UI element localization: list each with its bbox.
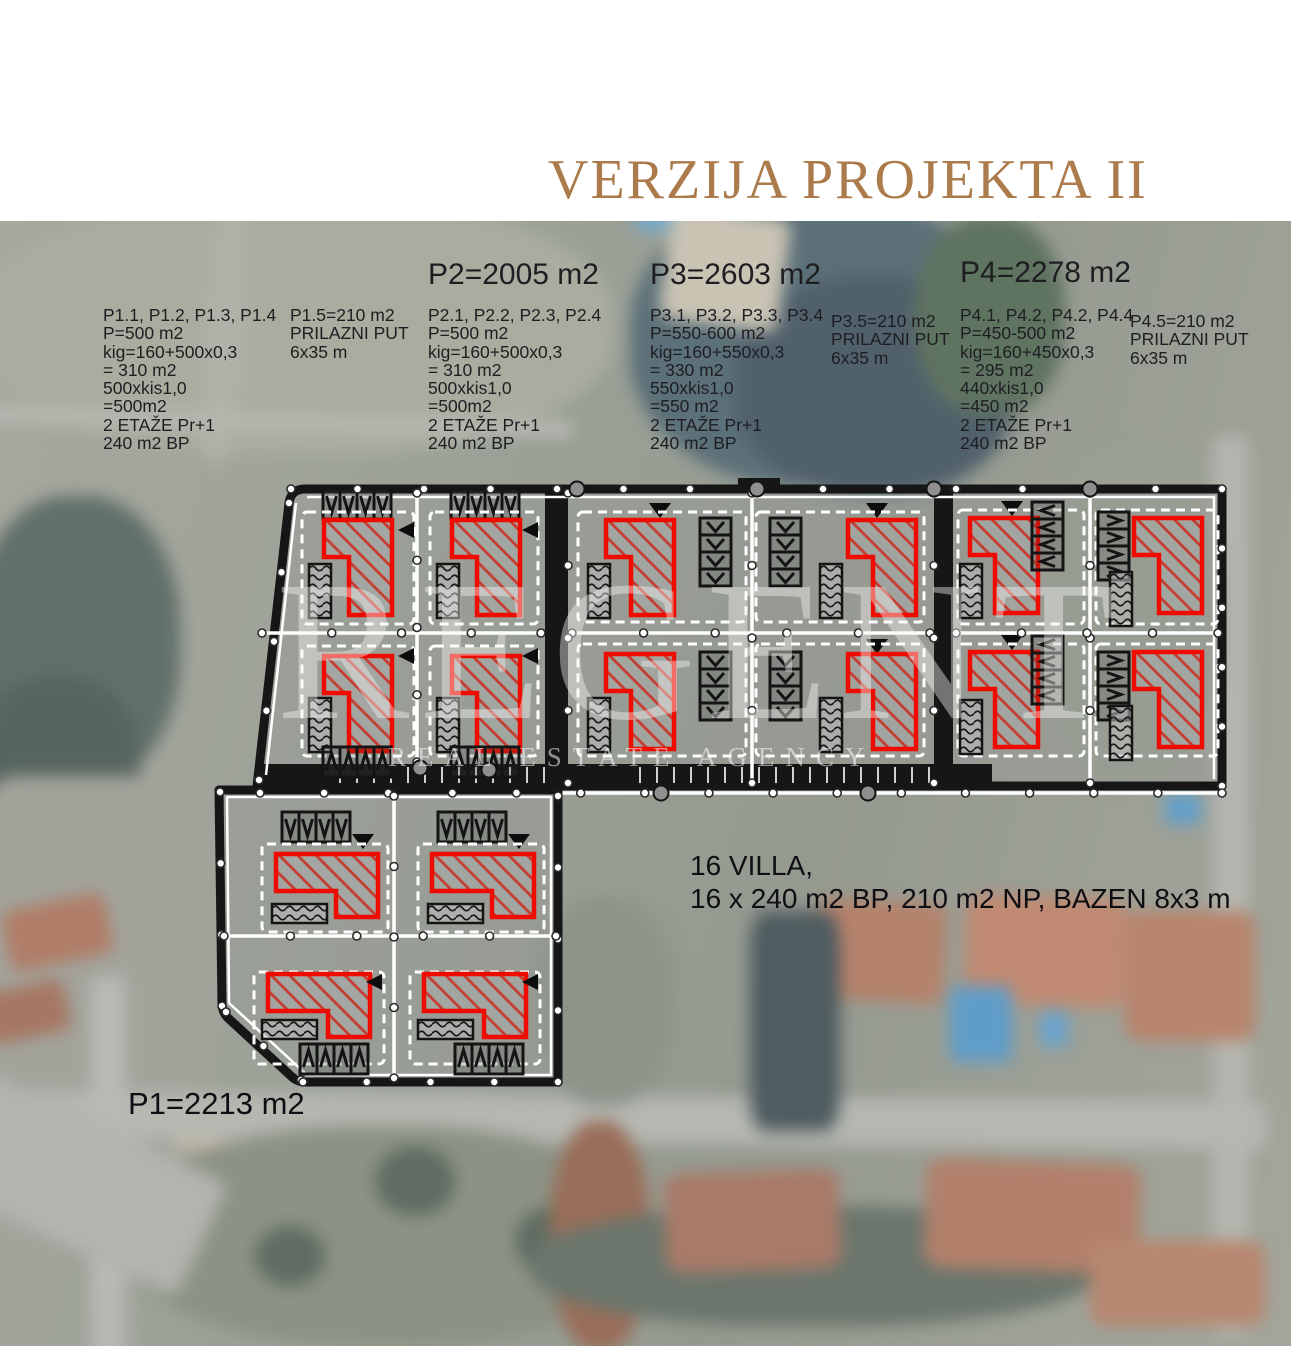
survey-node bbox=[554, 1007, 562, 1015]
pool-icon bbox=[418, 1020, 473, 1039]
survey-node bbox=[886, 485, 894, 493]
text-line: 240 m2 BP bbox=[103, 434, 276, 452]
parcel-p4-access: P4.5=210 m2PRILAZNI PUT6x35 m bbox=[1130, 312, 1249, 367]
survey-node bbox=[363, 1078, 371, 1086]
text-line: =500m2 bbox=[103, 397, 276, 415]
text-line: P4.5=210 m2 bbox=[1130, 312, 1249, 330]
survey-node bbox=[258, 629, 266, 637]
survey-node bbox=[564, 779, 572, 787]
watermark-brand: REGENT bbox=[276, 552, 1125, 752]
survey-node bbox=[1218, 663, 1226, 671]
parcel-p3-header: P3=2603 m2 bbox=[650, 258, 821, 292]
text-line: 240 m2 BP bbox=[960, 434, 1133, 452]
survey-node bbox=[299, 1078, 307, 1086]
survey-node bbox=[390, 1074, 398, 1082]
survey-node bbox=[1218, 723, 1226, 731]
junction-node bbox=[570, 482, 585, 497]
text-line: 6x35 m bbox=[831, 349, 950, 367]
text-line: 2 ETAŽE Pr+1 bbox=[428, 416, 601, 434]
text-line: 6x35 m bbox=[290, 343, 409, 361]
parcel-p1-header: P1=2213 m2 bbox=[128, 1086, 305, 1122]
survey-node bbox=[1154, 789, 1162, 797]
text-line: P=550-600 m2 bbox=[650, 324, 823, 342]
text-line: = 295 m2 bbox=[960, 361, 1133, 379]
parcel-p2-header: P2=2005 m2 bbox=[428, 258, 599, 292]
junction-node bbox=[654, 786, 669, 801]
text-line: P2.1, P2.2, P2.3, P2.4 bbox=[428, 306, 601, 324]
text-line: kig=160+500x0,3 bbox=[428, 343, 601, 361]
plan-p1-section bbox=[219, 790, 558, 1082]
survey-node bbox=[554, 864, 562, 872]
parcel-p3-details: P3.1, P3.2, P3.3, P3.4P=550-600 m2kig=16… bbox=[650, 306, 823, 452]
survey-node bbox=[413, 489, 421, 497]
text-line: PRILAZNI PUT bbox=[1130, 330, 1249, 348]
survey-node bbox=[554, 792, 562, 800]
survey-node bbox=[1086, 779, 1094, 787]
survey-node bbox=[353, 932, 361, 940]
survey-node bbox=[769, 789, 777, 797]
survey-node bbox=[833, 789, 841, 797]
parking-icon bbox=[438, 812, 506, 842]
survey-node bbox=[897, 789, 905, 797]
junction-node bbox=[750, 482, 765, 497]
survey-node bbox=[1218, 789, 1226, 797]
text-line: 440xkis1,0 bbox=[960, 379, 1133, 397]
text-line: PRILAZNI PUT bbox=[290, 324, 409, 342]
text-line: P3.1, P3.2, P3.3, P3.4 bbox=[650, 306, 823, 324]
text-line: 500xkis1,0 bbox=[428, 379, 601, 397]
villas-annotation: 16 VILLA, 16 x 240 m2 BP, 210 m2 NP, BAZ… bbox=[690, 849, 1231, 915]
text-line: 500xkis1,0 bbox=[103, 379, 276, 397]
text-line: =500m2 bbox=[428, 397, 601, 415]
survey-node bbox=[260, 1042, 268, 1050]
survey-node bbox=[354, 485, 362, 493]
text-line: PRILAZNI PUT bbox=[831, 330, 950, 348]
pool-icon bbox=[272, 904, 327, 923]
text-line: kig=160+550x0,3 bbox=[650, 343, 823, 361]
survey-node bbox=[952, 485, 960, 493]
pool-icon bbox=[428, 904, 483, 923]
survey-node bbox=[486, 932, 494, 940]
text-line: 550xkis1,0 bbox=[650, 379, 823, 397]
junction-node bbox=[1083, 482, 1098, 497]
text-line: 2 ETAŽE Pr+1 bbox=[650, 416, 823, 434]
survey-node bbox=[216, 788, 224, 796]
text-line: =550 m2 bbox=[650, 397, 823, 415]
junction-node bbox=[927, 482, 942, 497]
text-line: 240 m2 BP bbox=[428, 434, 601, 452]
parcel-p2-details: P2.1, P2.2, P2.3, P2.4P=500 m2kig=160+50… bbox=[428, 306, 601, 452]
survey-node bbox=[286, 932, 294, 940]
text-line: P1.1, P1.2, P1.3, P1.4 bbox=[103, 306, 276, 324]
survey-node bbox=[1090, 789, 1098, 797]
survey-node bbox=[1218, 604, 1226, 612]
parcel-p4-header: P4=2278 m2 bbox=[960, 256, 1131, 290]
survey-node bbox=[220, 932, 228, 940]
survey-node bbox=[686, 485, 694, 493]
survey-node bbox=[930, 779, 938, 787]
text-line: P1.5=210 m2 bbox=[290, 306, 409, 324]
survey-node bbox=[552, 932, 560, 940]
survey-node bbox=[287, 485, 295, 493]
text-line: 2 ETAŽE Pr+1 bbox=[103, 416, 276, 434]
parking-icon bbox=[282, 812, 350, 842]
survey-node bbox=[1152, 485, 1160, 493]
text-line: = 310 m2 bbox=[428, 361, 601, 379]
survey-node bbox=[222, 1008, 230, 1016]
survey-node bbox=[961, 789, 969, 797]
survey-node bbox=[490, 1078, 498, 1086]
survey-node bbox=[1149, 629, 1157, 637]
survey-node bbox=[513, 789, 521, 797]
survey-node bbox=[1218, 485, 1226, 493]
parking-icon bbox=[455, 1044, 523, 1074]
watermark-tagline: REAL ESTATE AGENCY bbox=[388, 742, 875, 773]
survey-node bbox=[427, 1078, 435, 1086]
text-line: 240 m2 BP bbox=[650, 434, 823, 452]
text-line: 6x35 m bbox=[1130, 349, 1249, 367]
text-line: = 330 m2 bbox=[650, 361, 823, 379]
parking-icon bbox=[451, 489, 519, 519]
survey-node bbox=[320, 789, 328, 797]
junction-node bbox=[861, 786, 876, 801]
text-line: P=500 m2 bbox=[103, 324, 276, 342]
text-line: kig=160+500x0,3 bbox=[103, 343, 276, 361]
text-line: 2 ETAŽE Pr+1 bbox=[960, 416, 1133, 434]
survey-node bbox=[448, 789, 456, 797]
survey-node bbox=[419, 932, 427, 940]
survey-node bbox=[285, 499, 293, 507]
survey-node bbox=[217, 859, 225, 867]
survey-node bbox=[819, 485, 827, 493]
survey-node bbox=[554, 1078, 562, 1086]
survey-node bbox=[390, 1004, 398, 1012]
parcel-p1-access: P1.5=210 m2PRILAZNI PUT6x35 m bbox=[290, 306, 409, 361]
parcel-p1-details: P1.1, P1.2, P1.3, P1.4P=500 m2kig=160+50… bbox=[103, 306, 276, 452]
parking-icon bbox=[300, 1044, 368, 1074]
survey-node bbox=[620, 485, 628, 493]
survey-node bbox=[390, 792, 398, 800]
page-title: VERZIJA PROJEKTA II bbox=[548, 148, 1148, 212]
survey-node bbox=[1026, 789, 1034, 797]
parcel-p3-access: P3.5=210 m2PRILAZNI PUT6x35 m bbox=[831, 312, 950, 367]
survey-node bbox=[641, 789, 649, 797]
survey-node bbox=[705, 789, 713, 797]
text-line: P=500 m2 bbox=[428, 324, 601, 342]
survey-node bbox=[1019, 485, 1027, 493]
survey-node bbox=[390, 863, 398, 871]
text-line: = 310 m2 bbox=[103, 361, 276, 379]
survey-node bbox=[263, 707, 271, 715]
text-line: =450 m2 bbox=[960, 397, 1133, 415]
survey-node bbox=[390, 933, 398, 941]
survey-node bbox=[1218, 544, 1226, 552]
text-line: P4.1, P4.2, P4.2, P4.4 bbox=[960, 306, 1133, 324]
survey-node bbox=[256, 789, 264, 797]
survey-node bbox=[577, 789, 585, 797]
survey-node bbox=[748, 779, 756, 787]
parcel-p4-details: P4.1, P4.2, P4.2, P4.4P=450-500 m2kig=16… bbox=[960, 306, 1133, 452]
survey-node bbox=[553, 485, 561, 493]
villas-annotation-line2: 16 x 240 m2 BP, 210 m2 NP, BAZEN 8x3 m bbox=[690, 882, 1231, 915]
villas-annotation-line1: 16 VILLA, bbox=[690, 849, 1231, 882]
survey-node bbox=[1214, 629, 1222, 637]
survey-node bbox=[255, 776, 263, 784]
text-line: kig=160+450x0,3 bbox=[960, 343, 1133, 361]
text-line: P=450-500 m2 bbox=[960, 324, 1133, 342]
text-line: P3.5=210 m2 bbox=[831, 312, 950, 330]
survey-node bbox=[487, 485, 495, 493]
pool-icon bbox=[262, 1020, 317, 1039]
